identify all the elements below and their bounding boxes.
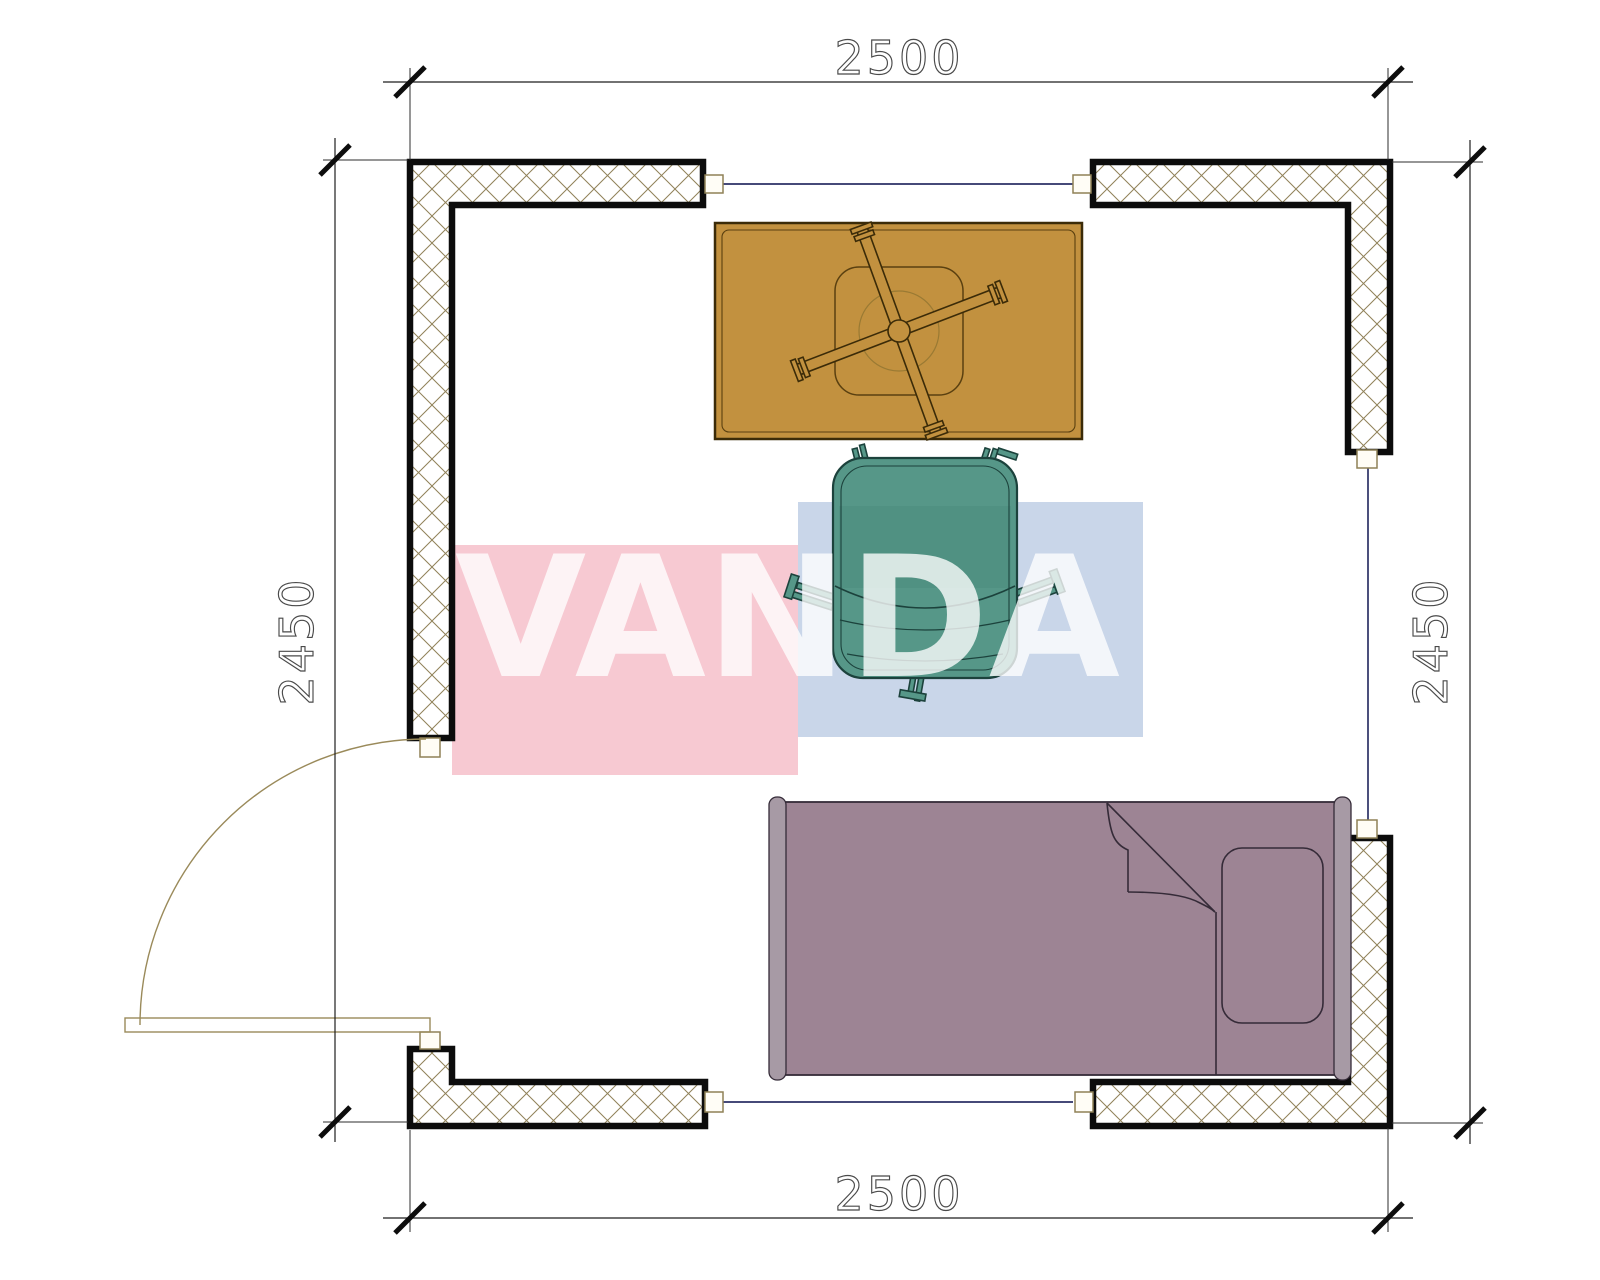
floor-plan-svg: VANDA 2500 2500 2450 2450 — [0, 0, 1600, 1280]
door-arc — [140, 739, 426, 1025]
dimension-top-label: 2500 — [834, 31, 963, 85]
window-right-post-bottom — [1357, 820, 1377, 838]
dimension-left-label: 2450 — [270, 576, 324, 705]
bed — [769, 797, 1351, 1080]
pillow — [1222, 848, 1323, 1023]
bed-rail-left — [769, 797, 786, 1080]
window-right-post-top — [1357, 450, 1377, 468]
dimension-right-label: 2450 — [1404, 576, 1458, 705]
dimension-top: 2500 — [383, 31, 1413, 160]
floor-plan-page: VANDA 2500 2500 2450 2450 — [0, 0, 1600, 1280]
bed-rail-right — [1334, 797, 1351, 1080]
window-bottom-post-left — [705, 1092, 723, 1112]
dimension-right: 2450 — [1392, 140, 1485, 1144]
dimension-left: 2450 — [270, 138, 408, 1142]
door-post-hinge — [420, 1032, 440, 1049]
wall-bottom-left — [410, 1049, 705, 1126]
window-right — [1357, 450, 1377, 838]
cross-hub — [888, 320, 910, 342]
door — [125, 738, 440, 1049]
watermark-text: VANDA — [455, 520, 1120, 716]
window-bottom — [705, 1092, 1093, 1112]
dimension-bottom-label: 2500 — [834, 1167, 963, 1221]
dimension-bottom: 2500 — [383, 1128, 1413, 1233]
wall-top-right — [1093, 162, 1390, 452]
door-post-top — [420, 738, 440, 757]
window-top — [705, 175, 1091, 193]
window-top-post-left — [705, 175, 723, 193]
window-top-post-right — [1073, 175, 1091, 193]
window-bottom-post-right — [1075, 1092, 1093, 1112]
door-leaf — [125, 1018, 430, 1032]
desk — [715, 222, 1082, 440]
